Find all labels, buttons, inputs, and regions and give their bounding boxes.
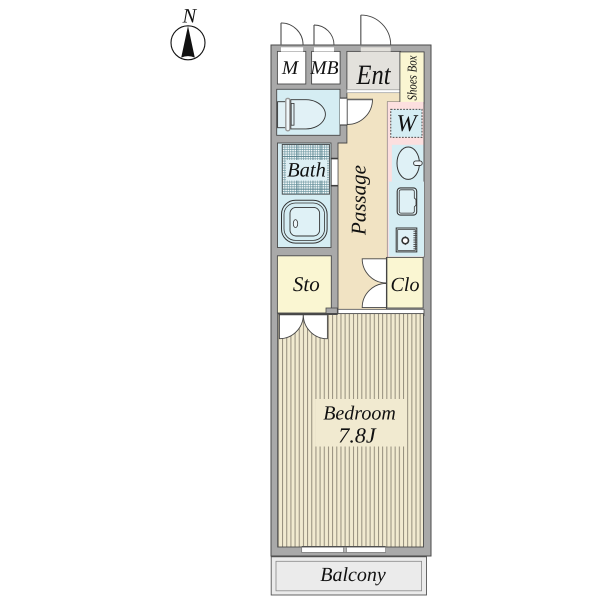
svg-text:Sto: Sto (293, 272, 320, 296)
svg-text:Passage: Passage (347, 165, 371, 236)
svg-text:W: W (397, 111, 419, 137)
svg-text:Shoes Box: Shoes Box (405, 55, 420, 100)
svg-text:Bedroom: Bedroom (323, 403, 396, 425)
svg-text:N: N (181, 6, 197, 28)
svg-text:M: M (281, 58, 300, 79)
svg-text:7.8J: 7.8J (338, 424, 377, 448)
svg-text:Clo: Clo (391, 274, 420, 296)
svg-text:Bath: Bath (287, 160, 326, 182)
svg-text:Ent: Ent (356, 60, 392, 91)
svg-text:MB: MB (309, 58, 338, 79)
svg-text:Balcony: Balcony (320, 564, 386, 586)
